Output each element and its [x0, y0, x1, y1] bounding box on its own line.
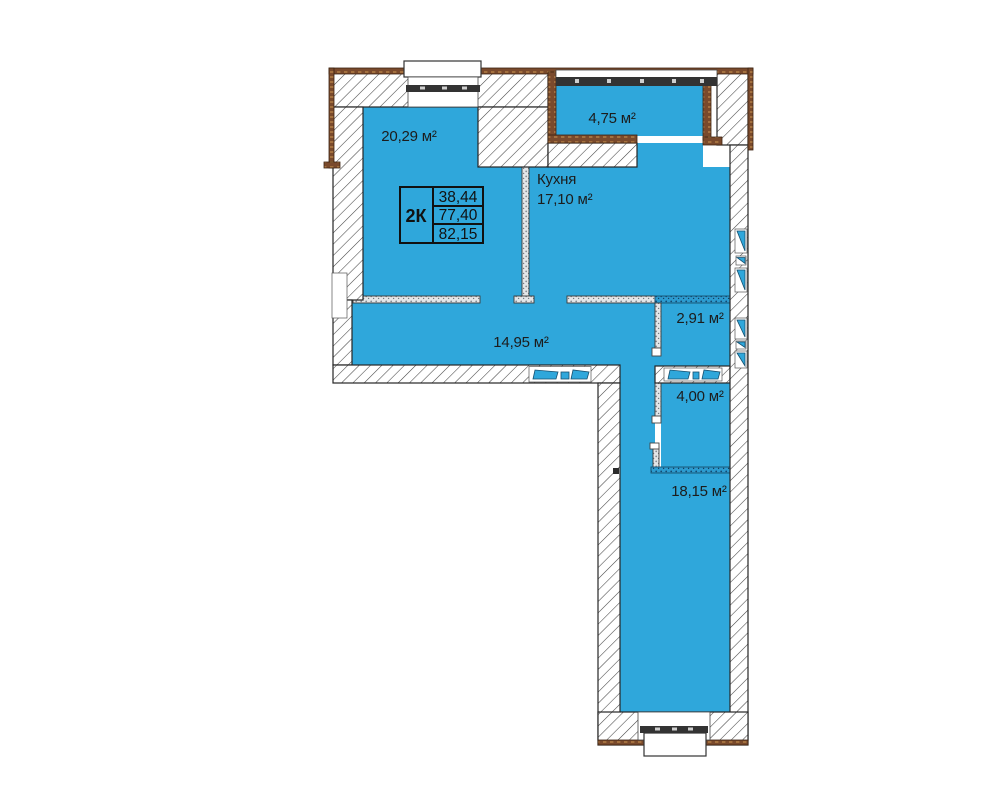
wall-pier-window-right: [478, 107, 548, 167]
entrance-door-wedge: [571, 370, 589, 379]
partition-living-hall: [353, 296, 480, 303]
living-window-sill: [404, 61, 481, 77]
room-bedroom-floor: [620, 471, 730, 712]
floorplan-drawing: 20,29 м² 4,75 м² Кухня 17,10 м² 2,91 м² …: [0, 0, 1001, 812]
balcony-area-label: 4,75 м²: [588, 110, 635, 127]
bathroom-door-block: [693, 372, 699, 379]
glazing-tick: [607, 79, 611, 83]
balcony-glazing-frame: [556, 77, 717, 86]
insulation-right-edge: [748, 68, 753, 150]
floorplan-canvas: 20,29 м² 4,75 м² Кухня 17,10 м² 2,91 м² …: [0, 0, 1001, 812]
glazing-tick: [672, 79, 676, 83]
kitchen-door-opening: [529, 295, 567, 304]
wall-right-top: [717, 72, 748, 145]
kitchen-area-label: 17,10 м²: [537, 191, 593, 208]
unit-type-label: 2К: [406, 206, 428, 226]
kitchen-name-label: Кухня: [537, 171, 576, 188]
window-tick: [442, 87, 447, 90]
balcony-glazing-backing: [556, 70, 717, 78]
bathroom-door-wedge: [702, 370, 720, 379]
insulation-left-edge: [329, 68, 334, 168]
entrance-door-wedge: [533, 370, 558, 379]
partition-wc-top: [655, 296, 730, 303]
entrance-door-block: [561, 372, 569, 379]
insulation-left-stub: [324, 162, 340, 168]
living-area-value: 38,44: [439, 189, 478, 206]
window-tick: [688, 728, 693, 731]
partition-bathroom-bedroom: [651, 467, 730, 473]
balcony-wall-left: [548, 72, 556, 143]
living-door-opening: [478, 295, 514, 304]
window-tick: [462, 87, 467, 90]
bedroom-window-sill: [644, 733, 706, 756]
bathroom-door-wedge: [668, 370, 690, 379]
partition-bathroom-stub: [653, 447, 659, 469]
partition-kitchen-living: [522, 167, 529, 303]
glazing-tick: [700, 79, 704, 83]
partition-bathroom-left: [655, 383, 661, 418]
door-stop-mark: [613, 468, 619, 474]
wall-under-balcony: [548, 143, 637, 167]
window-tick: [655, 728, 660, 731]
hall-area-label: 14,95 м²: [493, 334, 549, 351]
bedroom-area-label: 18,15 м²: [671, 483, 727, 500]
window-tick: [672, 728, 677, 731]
partition-kitchen-stub: [514, 296, 534, 303]
partition-cap: [652, 348, 661, 356]
balcony-door-opening: [637, 143, 703, 169]
partition-cap: [650, 443, 659, 449]
bathroom-area-label: 4,00 м²: [676, 388, 723, 405]
total-area-value: 82,15: [439, 226, 478, 243]
living-area-label: 20,29 м²: [381, 128, 437, 145]
partition-hall-kitchen: [567, 296, 655, 303]
balcony-wall-right-stub: [703, 137, 722, 145]
glazing-tick: [575, 79, 579, 83]
corridor-floor: [620, 360, 655, 475]
partition-cap: [652, 416, 661, 423]
wall-left-upper: [333, 107, 363, 300]
balcony-wall-bottom: [548, 135, 637, 143]
wall-left-notch: [332, 273, 347, 318]
window-tick: [420, 87, 425, 90]
wall-bar-left: [598, 383, 620, 740]
partition-wc-left: [655, 303, 661, 348]
glazing-tick: [640, 79, 644, 83]
apartment-area-value: 77,40: [439, 207, 478, 224]
wc-area-label: 2,91 м²: [676, 310, 723, 327]
